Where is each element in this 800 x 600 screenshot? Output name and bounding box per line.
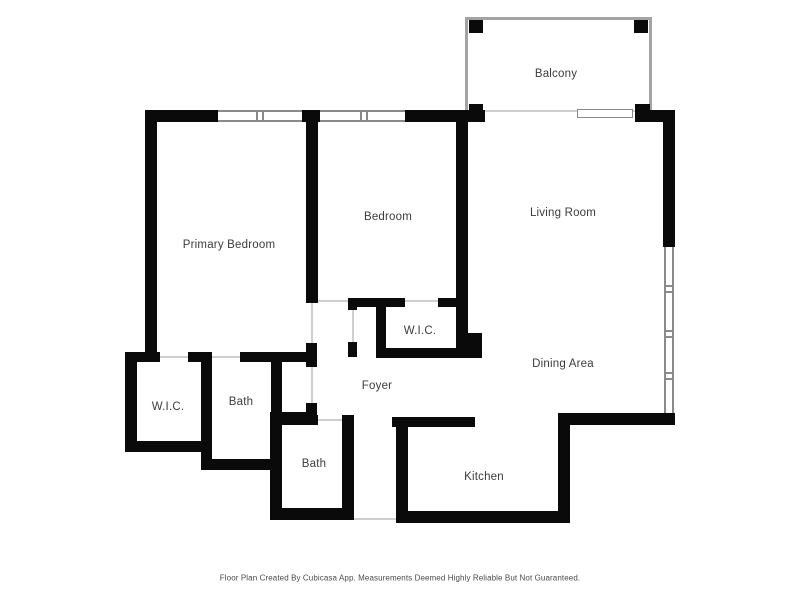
room-label-dining-area: Dining Area: [532, 358, 594, 370]
door-opening: [405, 300, 438, 302]
wall-segment: [270, 415, 282, 520]
wall-segment: [201, 352, 212, 470]
room-label-bath-second: Bath: [302, 458, 326, 470]
door-opening: [352, 310, 354, 342]
window: [320, 110, 405, 122]
window-mullion: [666, 330, 672, 332]
room-label-bedroom: Bedroom: [364, 211, 412, 223]
window-mullion: [256, 112, 258, 120]
footer-disclaimer: Floor Plan Created By Cubicasa App. Meas…: [220, 574, 580, 583]
window: [664, 247, 674, 413]
balcony-post: [634, 20, 648, 33]
wall-segment: [145, 110, 157, 362]
wall-segment: [348, 298, 357, 310]
sliding-door: [577, 109, 633, 118]
room-label-kitchen: Kitchen: [464, 471, 504, 483]
window-mullion: [666, 285, 672, 287]
wall-segment: [125, 352, 137, 452]
wall-segment: [456, 110, 468, 358]
wall-segment: [376, 348, 480, 358]
window: [218, 110, 302, 122]
wall-segment: [438, 298, 456, 307]
wall-segment: [558, 413, 675, 425]
floor-plan: Balcony Primary Bedroom Bedroom Living R…: [0, 0, 800, 600]
door-opening: [318, 419, 342, 421]
window-mullion: [366, 112, 368, 120]
balcony-railing: [465, 17, 652, 20]
wall-segment: [342, 415, 354, 520]
wall-segment: [348, 342, 357, 357]
door-opening: [212, 356, 240, 358]
door-opening: [160, 356, 188, 358]
window-mullion: [262, 112, 264, 120]
window-mullion: [666, 378, 672, 380]
wall-segment: [405, 110, 485, 122]
door-opening: [311, 303, 313, 343]
balcony-railing: [465, 17, 468, 112]
room-label-wic-primary: W.I.C.: [152, 401, 185, 413]
room-label-foyer: Foyer: [362, 380, 392, 392]
wall-segment: [306, 110, 318, 303]
room-label-bath-primary: Bath: [229, 396, 253, 408]
balcony-post: [469, 20, 483, 33]
window-mullion: [360, 112, 362, 120]
wall-segment: [396, 417, 408, 523]
window-mullion: [666, 372, 672, 374]
balcony-railing: [649, 17, 652, 112]
room-label-balcony: Balcony: [535, 68, 577, 80]
window-mullion: [666, 336, 672, 338]
wall-segment: [396, 511, 570, 523]
window-mullion: [666, 291, 672, 293]
room-label-living-room: Living Room: [530, 207, 596, 219]
door-opening: [318, 300, 348, 302]
wall-segment: [306, 343, 317, 367]
entry-opening-line: [354, 518, 396, 520]
door-opening: [311, 367, 313, 403]
wall-segment: [558, 413, 570, 523]
wall-segment: [663, 110, 675, 247]
wall-segment: [125, 441, 210, 452]
room-label-wic-hall: W.I.C.: [404, 325, 437, 337]
room-label-primary-bedroom: Primary Bedroom: [183, 239, 275, 251]
